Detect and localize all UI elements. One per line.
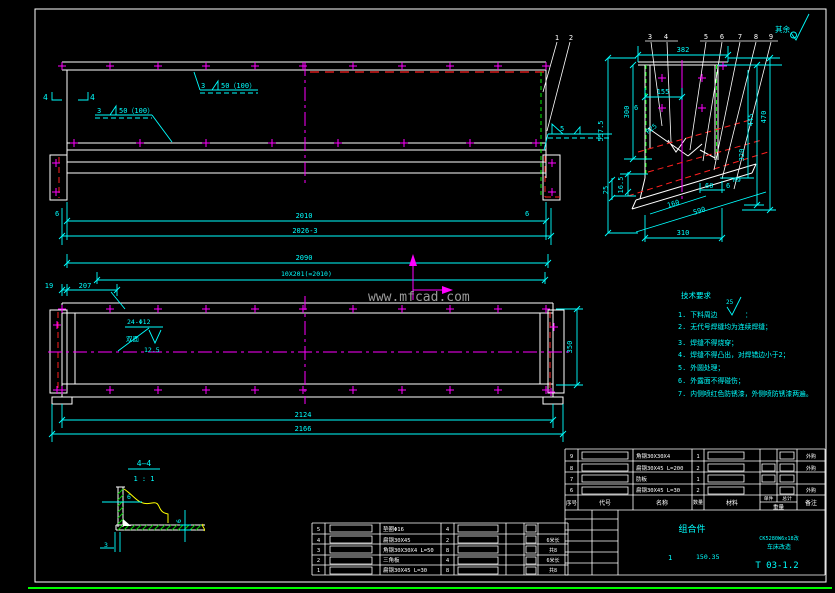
row-seq: 9 [570,454,573,460]
note-2: 2. 无代号焊缝均为连续焊缝； [678,322,772,331]
dim-350: 350 [566,341,574,354]
weld-leg-left: 6 [55,210,59,218]
dim-382: 382 [677,46,690,54]
pt-seq: 5 [317,527,320,533]
header-total: 总计 [782,495,792,502]
dim-2166: 2166 [295,425,312,433]
dim-6-wall: 6 [634,104,638,112]
balloon-3: 3 [648,33,652,41]
dim-gap: 3 [104,541,108,549]
pt-remark: 共8 [549,567,557,574]
note-4: 4. 焊缝不得凸出，对焊错边小于2； [678,350,790,359]
part-weight: 150.35 [696,553,720,561]
pt-name: 三角板 [383,556,400,564]
balloon-4: 4 [664,33,668,41]
balloon-5: 5 [704,33,708,41]
pt-qty: 2 [446,538,449,544]
weld-lower-spec: 50（100） [119,107,154,115]
dim-207: 207 [79,282,92,290]
balloon-6: 6 [720,33,724,41]
header-unit: 单件 [764,495,774,502]
section-view: 4—4 1 : 1 6 6 3 [100,459,205,552]
pt-name: 角钢30X30X4 L=50 [383,546,434,554]
parts-table: 5 垫圈Φ16 4 4 扁钢30X45 2 6米长 3 角钢30X30X4 L=… [312,523,568,575]
row-remark: 外购 [806,487,816,494]
note-6: 6. 外露面不得碰伤； [678,376,745,385]
dim-60: 60 [705,182,713,190]
pt-seq: 2 [317,558,320,564]
header-material: 材料 [726,499,738,507]
row-name: 扁钢30X45 L=200 [636,464,683,472]
row-qty: 1 [696,454,699,460]
weld-leg-right: 6 [525,210,529,218]
weld-upper-size: 3 [201,82,205,90]
pt-name: 扁钢30X45 L=30 [383,566,427,574]
dimension-ticks [49,52,773,437]
sheet-qty: 1 [668,554,672,562]
pt-remark: 6米长 [546,557,559,564]
tech-notes: 技术要求 1. 下料周边 25 ： 2. 无代号焊缝均为连续焊缝； 3. 焊缝不… [678,290,813,398]
header-seq: 序号 [566,499,578,507]
header-qty: 数量 [693,499,703,506]
dim-inner-length: 2010 [296,212,313,220]
row-qty: 2 [696,488,699,494]
pt-qty: 8 [446,548,449,554]
dim-590: 590 [692,205,706,216]
dim-2124: 2124 [295,411,312,419]
row-qty: 1 [696,477,699,483]
datum-arrow-up [409,254,417,266]
dim-6b: 6 [726,182,730,190]
dim-155: 155 [657,88,670,96]
pt-remark: 6米长 [546,537,559,544]
dim-320: 320 [738,149,746,162]
pt-seq: 3 [317,548,320,554]
section-scale: 1 : 1 [133,475,154,483]
note-5: 5. 外圆处理； [678,363,724,372]
header-name: 名称 [656,499,668,507]
weld-upper-spec: 50（100） [221,82,256,90]
row-seq: 6 [570,488,573,494]
section-label: 4—4 [137,459,152,468]
row-remark: 外购 [806,465,816,472]
header-weight: 重量 [773,503,785,511]
weld-right-size: 5 [560,125,564,133]
pt-seq: 4 [317,538,321,544]
dim-overall-length: 2026-3 [292,227,317,235]
weld-lower-size: 3 [97,107,101,115]
row-qty: 2 [696,466,699,472]
surface-note: 其余 [775,24,790,34]
dim-470: 470 [760,111,768,124]
pt-seq: 1 [317,568,320,574]
row-remark: 外购 [806,453,816,460]
dim-2090: 2090 [296,254,313,262]
note-7: 7. 内侧喷红色防锈漆，外侧喷防锈漆两遍。 [678,389,813,398]
top-view: 1 2 3 50（100） 3 50（100） 4 4 5 6 6 2010 2… [43,34,612,245]
note-1-tail: ： [745,311,752,319]
dim-310: 310 [677,229,690,237]
row-name: 肋板 [636,475,648,483]
note-3: 3. 焊缝不得烧穿； [678,338,738,347]
project-line1: CK5280W6x18改 [759,534,799,542]
hole-roughness: 12.5 [144,346,160,354]
watermark: www.mfcad.com [368,290,470,305]
pt-name: 扁钢30X45 [383,536,411,544]
note-1: 1. 下料周边 [678,310,718,319]
dim-web: 6 [127,493,131,501]
dim-r9: R9 [733,176,741,184]
detail-view: 3 4 5 6 7 8 9 382 155 6 300 557.5 445 47… [597,14,809,242]
dim-445: 445 [747,114,755,127]
plan-view: 2090 10X201(=2010) 19 207 24-Φ12 双面 12.5… [45,254,583,442]
section-mark-right: 4 [90,93,95,102]
pt-name: 垫圈Φ16 [383,525,404,533]
header-remark: 备注 [805,499,817,507]
row-seq: 7 [570,477,573,483]
dim-160: 160 [666,198,680,209]
dim-pitch: 10X201(=2010) [281,270,332,278]
dim-16-5: 16.5 [617,177,625,194]
project-line2: 车床改造 [767,543,791,551]
title-block: 序号 代号 名称 数量 材料 单件 总计 重量 备注 9 角钢30X30X4 1… [565,449,825,575]
pt-qty: 4 [446,558,450,564]
dim-300: 300 [623,106,631,119]
balloon-2: 2 [569,34,573,42]
section-mark-left: 4 [43,93,48,102]
pt-qty: 4 [446,527,450,533]
part-name: 组合件 [678,523,705,535]
row-name: 扁钢30X45 L=30 [636,486,680,494]
balloon-9: 9 [769,33,773,41]
pt-qty: 8 [446,568,449,574]
dim-557-5: 557.5 [597,120,605,141]
note-1-roughness: 25 [726,299,734,306]
dim-19: 19 [45,282,53,290]
drawing-number: T 03-1.2 [755,561,798,571]
title-block-placeholder-boxes [582,452,794,494]
row-seq: 8 [570,466,573,472]
dim-25: 25 [602,186,610,194]
header-code: 代号 [599,499,611,507]
weld-fillet [123,519,131,526]
balloon-1: 1 [555,34,559,42]
notes-title: 技术要求 [681,290,711,300]
cad-canvas: 1 2 3 50（100） 3 50（100） 4 4 5 6 6 2010 2… [0,0,835,593]
row-name: 角钢30X30X4 [636,452,671,460]
balloon-8: 8 [754,33,758,41]
hole-callout: 24-Φ12 [127,318,151,326]
balloon-7: 7 [738,33,742,41]
dim-flange: 6 [175,519,183,523]
hole-callout-sub: 双面 [126,335,140,343]
pt-remark: 共8 [549,547,557,554]
